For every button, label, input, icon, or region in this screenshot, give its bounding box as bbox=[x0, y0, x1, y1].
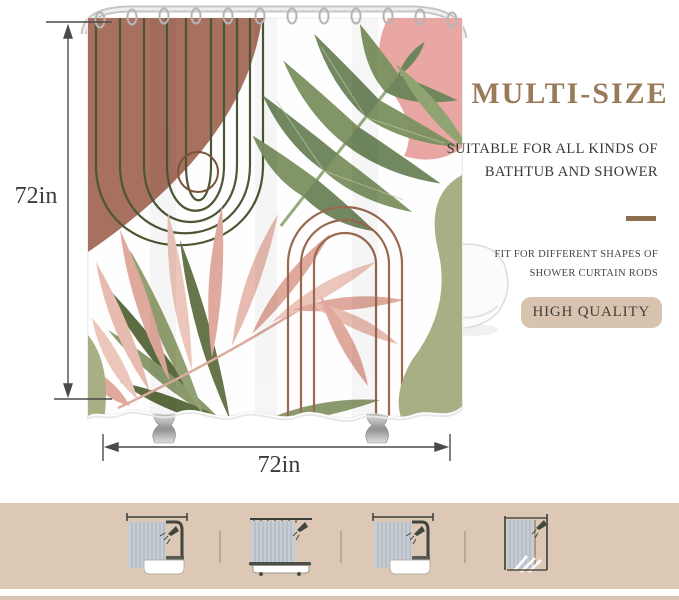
height-dimension-label: 72in bbox=[8, 183, 64, 210]
next-section-edge bbox=[0, 596, 679, 600]
subtitle-line-2: BATHTUB AND SHOWER bbox=[447, 161, 658, 184]
shower-curtain bbox=[86, 0, 504, 428]
installation-options-strip bbox=[0, 503, 679, 589]
strip-divider bbox=[340, 531, 342, 563]
strip-gap bbox=[0, 589, 679, 596]
feature-line-2: SHOWER CURTAIN RODS bbox=[494, 264, 658, 283]
product-infographic: 72in 72in MULTI-SIZE SUITABLE FOR ALL KI… bbox=[0, 0, 679, 600]
subtitle: SUITABLE FOR ALL KINDS OF BATHTUB AND SH… bbox=[447, 138, 658, 184]
bathtub-corner-rod-icon bbox=[370, 512, 438, 576]
width-dimension-label: 72in bbox=[224, 452, 334, 479]
divider bbox=[626, 216, 656, 221]
subtitle-line-1: SUITABLE FOR ALL KINDS OF bbox=[447, 138, 658, 161]
high-quality-badge: HIGH QUALITY bbox=[521, 297, 663, 328]
walk-in-shower-icon bbox=[501, 512, 553, 576]
page-title: MULTI-SIZE bbox=[463, 77, 677, 111]
strip-divider bbox=[464, 531, 466, 563]
clawfoot-tub-rod-icon bbox=[247, 512, 315, 576]
strip-divider bbox=[219, 531, 221, 563]
feature-line-1: FIT FOR DIFFERENT SHAPES OF bbox=[494, 245, 658, 264]
bathtub-straight-rod-icon bbox=[124, 512, 192, 576]
feature-text: FIT FOR DIFFERENT SHAPES OF SHOWER CURTA… bbox=[494, 245, 658, 283]
